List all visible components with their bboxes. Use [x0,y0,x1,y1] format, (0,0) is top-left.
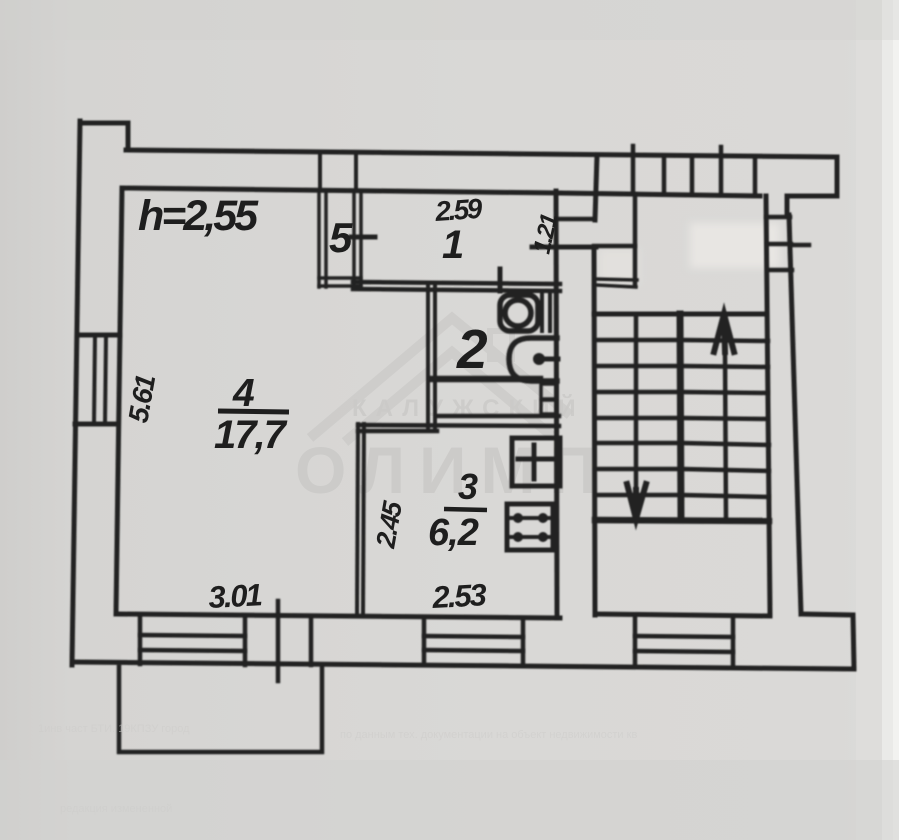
svg-text:редакция измененной: редакция измененной [60,803,172,815]
svg-text:17,7: 17,7 [214,413,288,457]
svg-text:2: 2 [456,318,488,380]
svg-text:ОЛИМП: ОЛИМП [295,433,611,507]
svg-text:1: 1 [442,223,464,267]
svg-text:3: 3 [458,466,478,507]
svg-text:по данным тех. документации на: по данным тех. документации на объект не… [340,729,637,741]
svg-text:6,2: 6,2 [428,512,479,554]
svg-text:5: 5 [329,214,353,261]
svg-text:h=2,55: h=2,55 [138,192,259,240]
svg-text:2.59: 2.59 [433,193,483,227]
svg-text:3.01: 3.01 [208,577,263,615]
svg-text:4: 4 [232,372,255,415]
svg-text:2.53: 2.53 [431,577,488,615]
svg-text:1инв част БТИ. 19КПЗУ город: 1инв част БТИ. 19КПЗУ город [38,723,190,735]
